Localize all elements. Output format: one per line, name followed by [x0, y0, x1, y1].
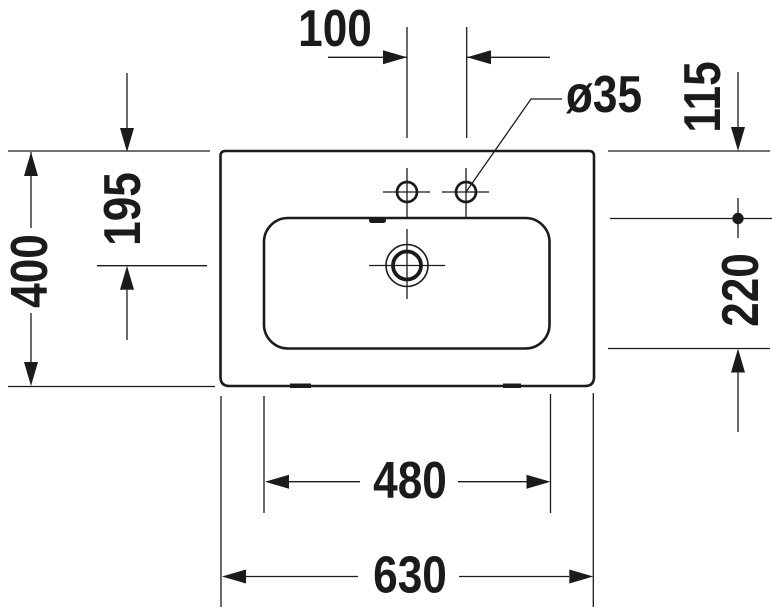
- fixing-mark-left: [290, 384, 311, 389]
- ref-dot: [732, 213, 743, 224]
- dimension-rim-to-drain-195: 195: [94, 73, 207, 340]
- arrowhead-480-left: [265, 475, 289, 489]
- dim-label-115: 115: [674, 61, 732, 132]
- arrowhead-195-down: [120, 128, 134, 152]
- callout-hole-diameter: ø35: [466, 66, 642, 192]
- faucet-holes: [383, 168, 489, 217]
- dim-label-o35: ø35: [566, 66, 642, 124]
- arrowhead-195-up: [120, 266, 134, 290]
- washbasin-technical-drawing: 100 ø35 115 220: [0, 0, 772, 609]
- arrowhead-480-right: [527, 475, 551, 489]
- arrowhead-220-up: [731, 349, 745, 373]
- dimension-bowl-depth-220: 220: [608, 253, 770, 432]
- arrowhead-100-right: [467, 50, 491, 64]
- arrowhead-100-left: [383, 50, 407, 64]
- drawing-sheet: 100 ø35 115 220: [0, 0, 772, 609]
- drain: [369, 229, 445, 299]
- dim-label-220: 220: [712, 253, 770, 327]
- arrowhead-630-right: [569, 570, 593, 584]
- leader-line-o35: [466, 99, 562, 192]
- dim-label-630: 630: [373, 546, 447, 604]
- dimension-faucet-hole-spacing: 100: [298, 0, 550, 138]
- arrowhead-630-left: [222, 570, 246, 584]
- dimension-bowl-width-480: 480: [264, 394, 551, 513]
- overflow-slot: [369, 218, 386, 224]
- arrowhead-400-down: [24, 362, 38, 386]
- fixing-mark-right: [503, 384, 521, 389]
- dim-label-100: 100: [298, 0, 372, 58]
- dim-label-480: 480: [373, 452, 447, 510]
- dim-label-400: 400: [1, 234, 59, 308]
- arrowhead-115-down: [731, 127, 745, 151]
- dim-label-195: 195: [94, 172, 152, 246]
